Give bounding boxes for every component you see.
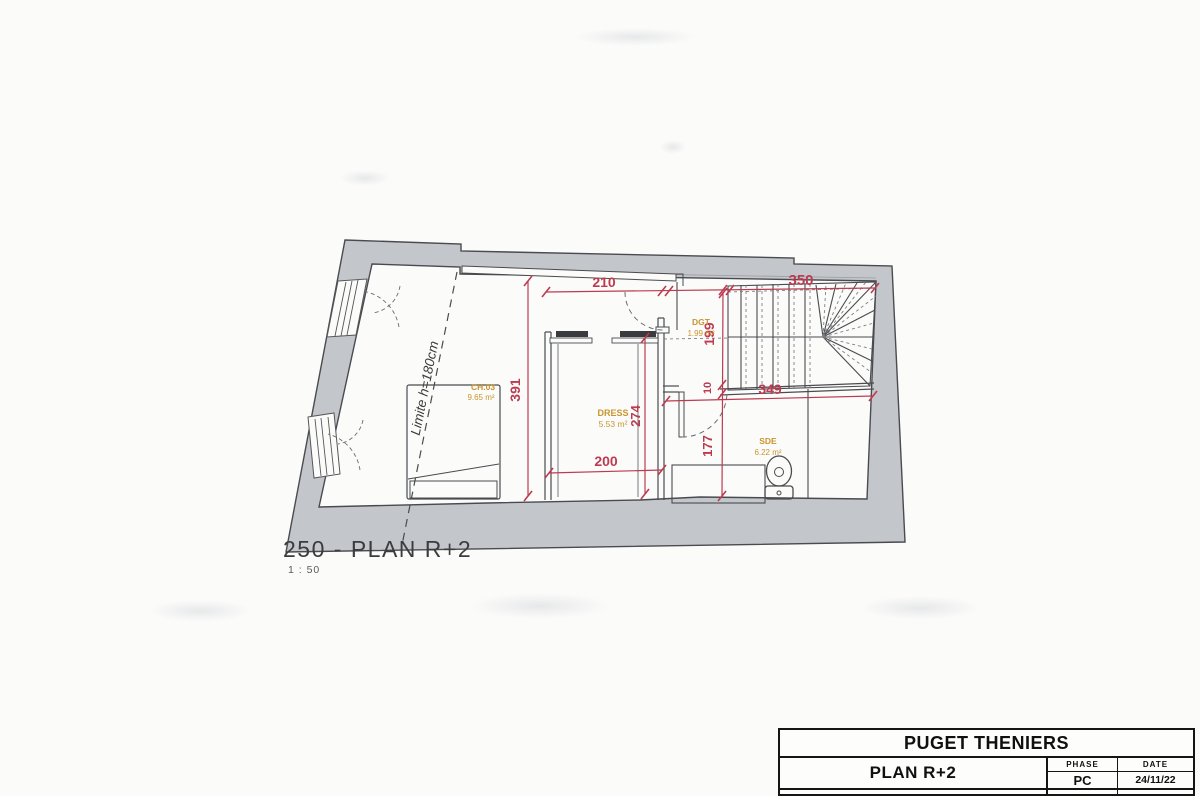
phase-label: PHASE [1048,758,1117,772]
title-block-project: PUGET THENIERS [780,730,1193,758]
title-block: PUGET THENIERS PLAN R+2 PHASE PC DATE 24… [778,728,1195,796]
room-area-ch03: 9.65 m² [467,393,494,402]
date-label: DATE [1118,758,1193,772]
dim-10: 10 [702,382,714,394]
title-block-sheet: PLAN R+2 [780,758,1048,788]
title-block-phase-cell: PHASE PC [1048,758,1118,788]
room-label-dress: DRESS [597,408,628,418]
height-limit-note: Limite h=180cm [408,340,442,437]
title-block-date-cell: DATE 24/11/22 [1118,758,1193,788]
room-label-dgt: DGT [692,317,711,327]
room-label-ch03: CH.03 [471,382,495,392]
dim-210: 210 [592,274,616,290]
dim-177: 177 [700,435,715,457]
drawing-scale: 1 : 50 [288,564,320,576]
dim-274: 274 [628,404,643,426]
dim-200: 200 [594,453,618,469]
window-upper-left [327,279,400,337]
room-area-dress: 5.53 m² [599,419,628,429]
date-value: 24/11/22 [1118,772,1193,788]
dim-350: 350 [788,272,813,289]
floor-plan: 210 350 391 199 10 349 274 177 200 CH.03… [0,0,1200,796]
dim-349: 349 [758,381,782,397]
room-area-dgt: 1.99 m² [687,329,714,338]
sde-door [679,392,727,437]
phase-value: PC [1048,772,1117,788]
drawing-title: 250 - PLAN R+2 [283,536,472,563]
room-area-sde: 6.22 m² [754,448,781,457]
title-block-clipped-row [780,790,1193,796]
toilet-icon [765,456,793,499]
room-label-sde: SDE [759,436,777,446]
dim-391: 391 [507,378,523,402]
title-block-row: PLAN R+2 PHASE PC DATE 24/11/22 [780,758,1193,790]
scanned-plan-page: { "plan": { "number_title": "250 - PLAN … [0,0,1200,796]
